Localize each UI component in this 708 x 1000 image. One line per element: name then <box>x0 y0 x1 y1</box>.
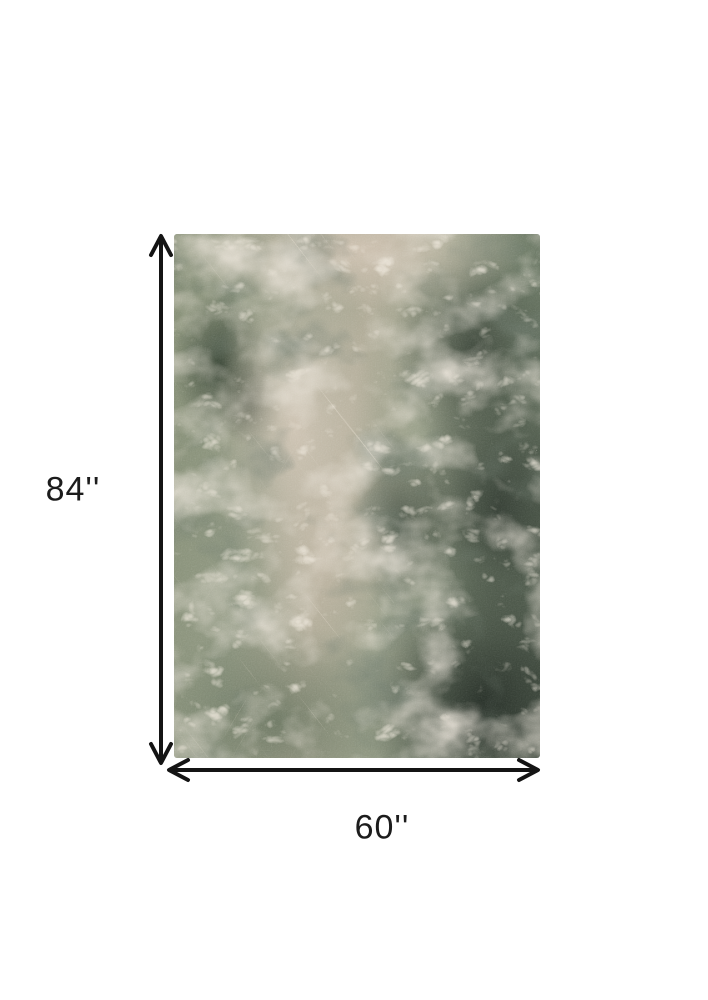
width-dimension-label: 60'' <box>355 809 410 848</box>
height-arrow <box>151 236 171 763</box>
dimension-arrows <box>0 0 708 1000</box>
product-dimension-diagram: 84'' 60'' <box>0 0 708 1000</box>
width-arrow <box>169 760 538 780</box>
height-dimension-label: 84'' <box>46 471 101 510</box>
